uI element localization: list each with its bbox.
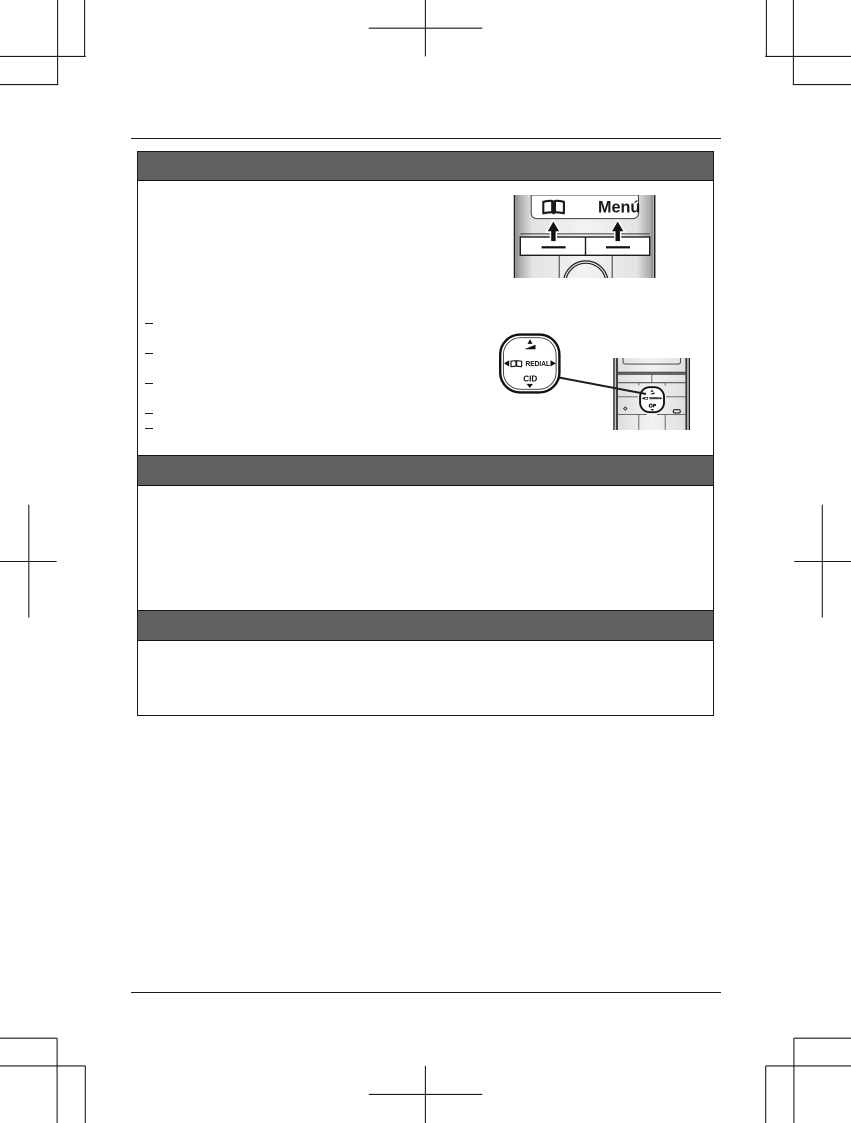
svg-text:CID: CID bbox=[523, 375, 537, 384]
svg-text:REDIAL: REDIAL bbox=[526, 359, 551, 368]
svg-text:Menú: Menú bbox=[598, 198, 640, 216]
